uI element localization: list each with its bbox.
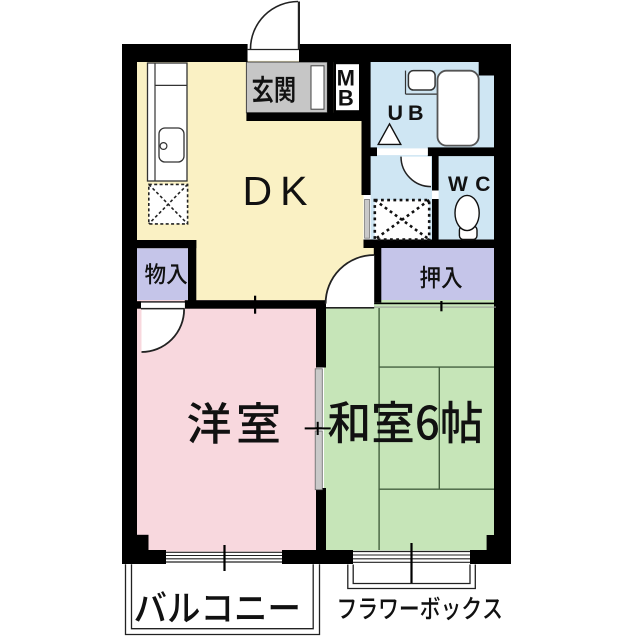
svg-text:DK: DK <box>243 168 316 214</box>
svg-text:UB: UB <box>388 101 429 125</box>
svg-text:B: B <box>338 85 354 110</box>
svg-text:WC: WC <box>448 173 498 196</box>
